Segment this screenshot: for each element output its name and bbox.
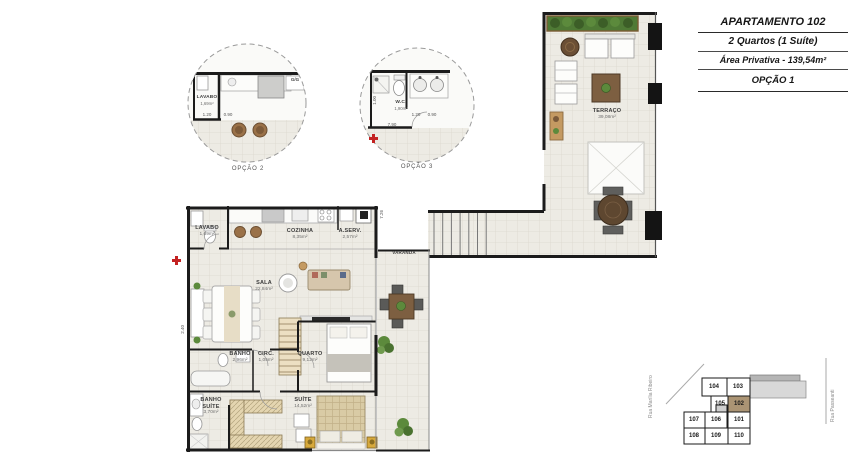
- sofa: [308, 270, 350, 290]
- keyplan-unit-101: 101: [734, 417, 744, 423]
- pergola-skylight: [588, 142, 644, 194]
- keyplan-wing-top: [750, 375, 800, 381]
- floorplan-page: APARTAMENTO 102 2 Quartos (1 Suíte) Área…: [0, 0, 848, 456]
- dining-table: [203, 286, 260, 342]
- street-label-right: Rua Passeanti: [830, 362, 837, 422]
- detail1-gg-tag: G/G: [291, 77, 299, 82]
- room-label-quarto: QUARTO 9,12m²: [298, 351, 323, 363]
- title-block: APARTAMENTO 102 2 Quartos (1 Suíte) Área…: [698, 16, 848, 92]
- keyplan-unit-102: 102: [734, 401, 744, 407]
- dimension-left: 2.40: [180, 325, 185, 334]
- detail1-room-label: LAVABO 1,69m²: [197, 95, 218, 106]
- room-label-banho-suite: BANHO SUÍTE 3,70m²: [198, 397, 224, 416]
- detail2-dim1: 1.00: [372, 96, 377, 105]
- bedroom-bed: [327, 324, 371, 382]
- room-label-cozinha: COZINHA 8,35m²: [287, 228, 313, 240]
- keyplan-unit-103: 103: [733, 384, 743, 390]
- private-area: Área Privativa - 139,54m²: [698, 52, 848, 70]
- street-label-left: Rua Marília Ribeiro: [648, 362, 655, 418]
- key-plan: [666, 358, 826, 444]
- room-label-aserv: A.SERV. 2,57m²: [339, 228, 362, 240]
- stool: [251, 227, 262, 238]
- apartment-title: APARTAMENTO 102: [698, 16, 848, 33]
- keyplan-unit-104: 104: [709, 384, 719, 390]
- room-label-sala: SALA 22,84m²: [255, 280, 273, 292]
- wood-console: [550, 112, 563, 140]
- keyplan-wing: [750, 381, 806, 398]
- round-pot-table: [561, 38, 579, 56]
- keyplan-unit-106: 106: [711, 417, 721, 423]
- detail-circle-wc: [360, 48, 480, 168]
- room-label-lavabo: LAVABO 1,69m²: [195, 225, 219, 237]
- keyplan-unit-108: 108: [689, 433, 699, 439]
- detail-circle-lavabo: [188, 44, 308, 170]
- dimension-right: 7.26: [379, 210, 384, 219]
- street-line-left: [666, 364, 704, 404]
- square-coffee-table: [592, 74, 620, 102]
- armchair-seat: [283, 278, 293, 288]
- keyplan-unit-110: 110: [734, 433, 744, 439]
- entry-marker-cross: [172, 256, 181, 265]
- detail2-dim4: 7.90: [388, 122, 397, 127]
- stool: [235, 227, 246, 238]
- side-table: [299, 262, 307, 270]
- keyplan-unit-107: 107: [689, 417, 699, 423]
- detail1-caption: OPÇÃO 2: [232, 166, 264, 172]
- room-label-varanda: VARANDA: [392, 250, 416, 255]
- detail2-caption: OPÇÃO 3: [401, 164, 433, 170]
- room-label-circ: CIRC. 1,05m²: [258, 351, 274, 363]
- detail1-dim1: 1.20: [203, 112, 212, 117]
- detail1-dim2: 0.90: [224, 112, 233, 117]
- option-label: OPÇÃO 1: [698, 70, 848, 92]
- detail2-dim2: 1.20: [412, 112, 421, 117]
- planter-hedge: [547, 16, 638, 31]
- detail2-dim3: 0.90: [428, 112, 437, 117]
- sideboard: [191, 283, 204, 344]
- room-label-terraco: TERRAÇO 39,08m²: [593, 108, 622, 120]
- room-label-suite: SUÍTE 14,52m²: [294, 397, 312, 409]
- detail2-room-label: W.C. 1,90m²: [394, 100, 407, 111]
- keyplan-unit-105: 105: [715, 401, 725, 407]
- keyplan-unit-109: 109: [711, 433, 721, 439]
- room-label-banho: BANHO 2,96m²: [229, 351, 250, 363]
- apartment-type: 2 Quartos (1 Suíte): [698, 33, 848, 52]
